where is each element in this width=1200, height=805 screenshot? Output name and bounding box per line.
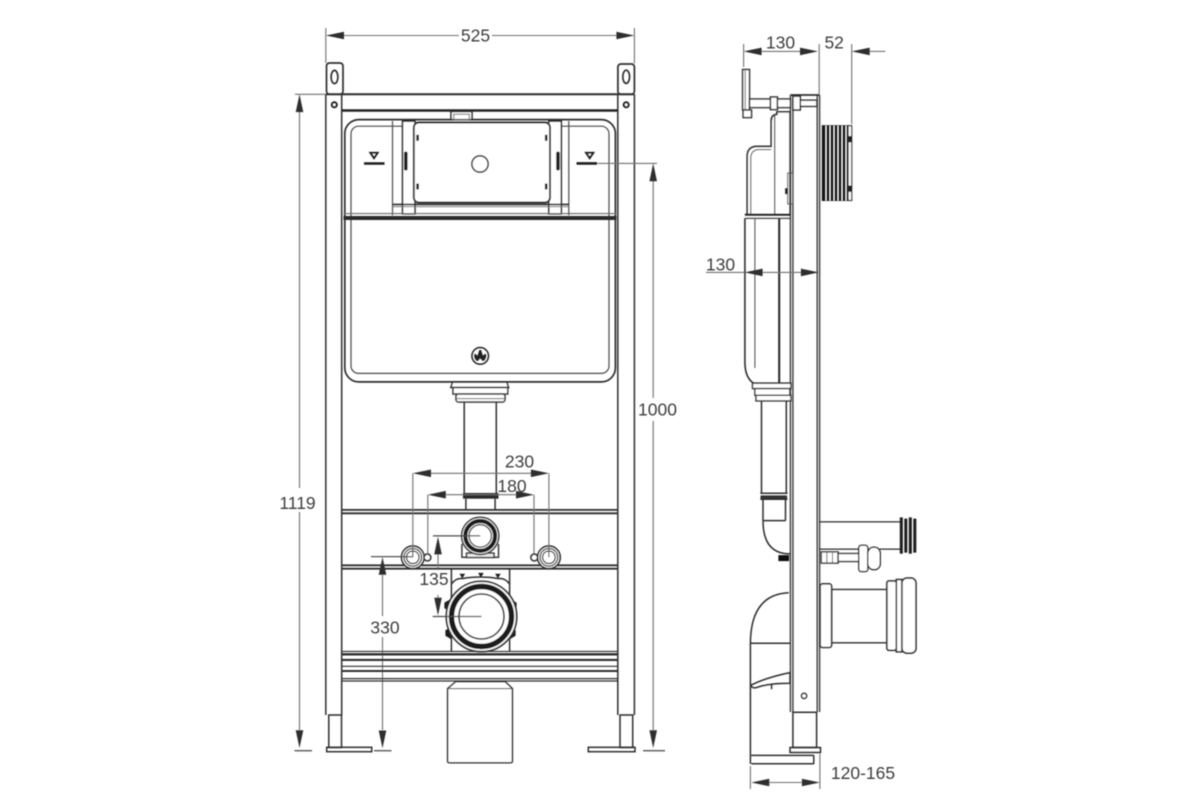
svg-text:52: 52 (824, 33, 843, 53)
svg-text:120-165: 120-165 (831, 763, 895, 783)
svg-text:230: 230 (505, 452, 534, 472)
svg-text:1000: 1000 (638, 400, 677, 420)
svg-text:135: 135 (419, 569, 448, 589)
svg-text:330: 330 (370, 618, 399, 638)
svg-text:130: 130 (706, 255, 735, 275)
svg-text:130: 130 (766, 33, 795, 53)
svg-text:1119: 1119 (279, 493, 315, 513)
svg-text:525: 525 (461, 26, 490, 46)
svg-text:180: 180 (497, 476, 526, 496)
